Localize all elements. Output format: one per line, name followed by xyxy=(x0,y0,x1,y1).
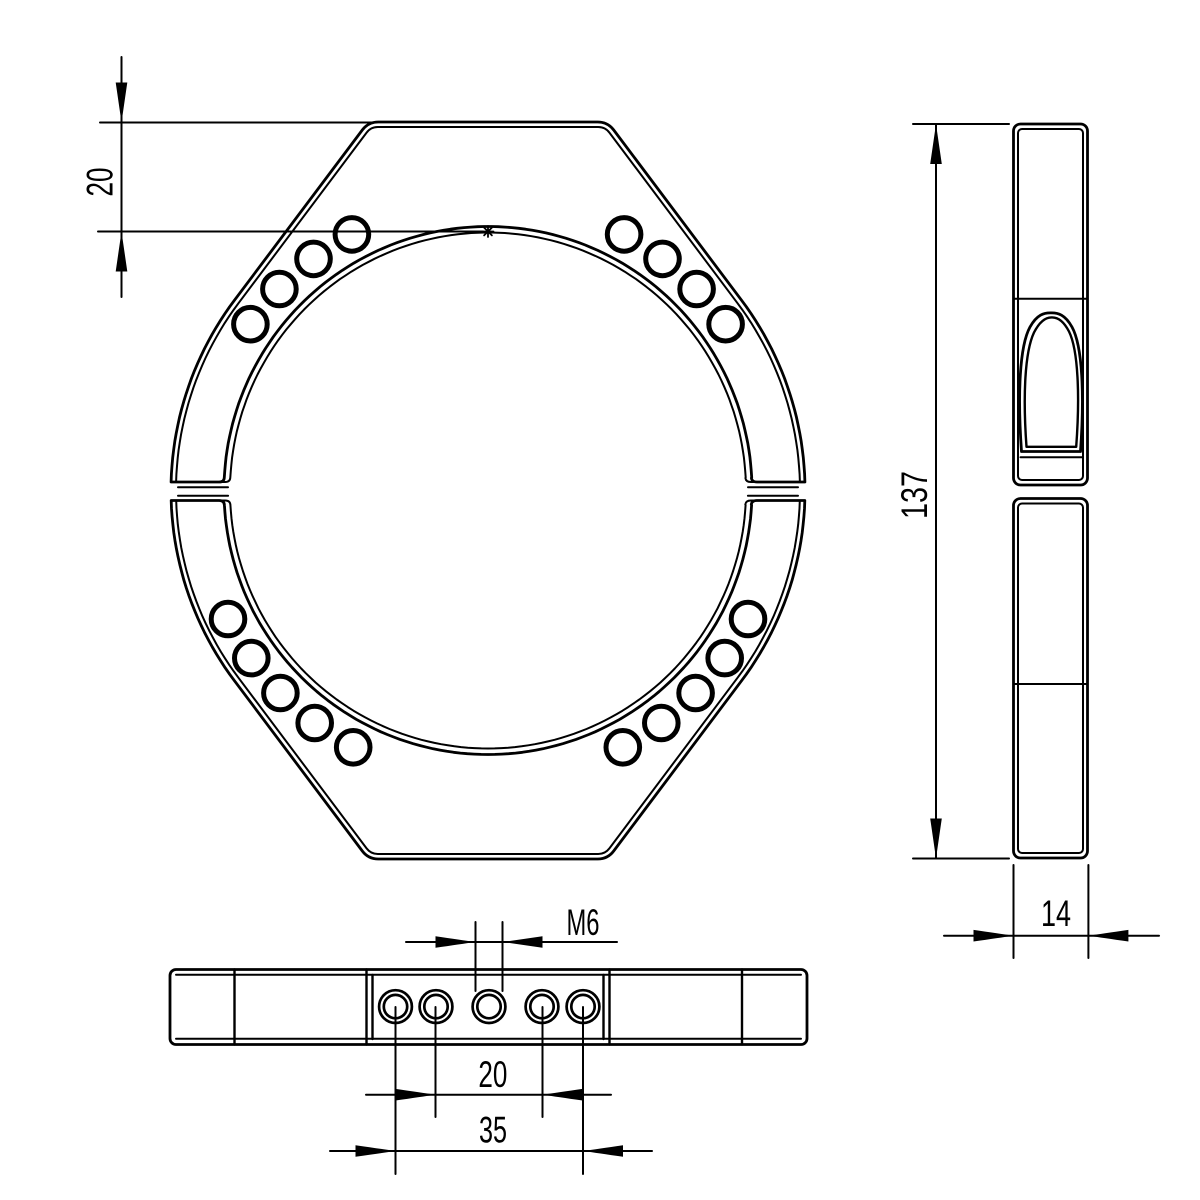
svg-text:M6: M6 xyxy=(567,901,600,943)
svg-text:20: 20 xyxy=(79,168,121,197)
svg-text:35: 35 xyxy=(479,1109,507,1151)
svg-text:137: 137 xyxy=(893,471,935,519)
svg-text:20: 20 xyxy=(478,1053,507,1095)
svg-text:14: 14 xyxy=(1041,892,1071,934)
